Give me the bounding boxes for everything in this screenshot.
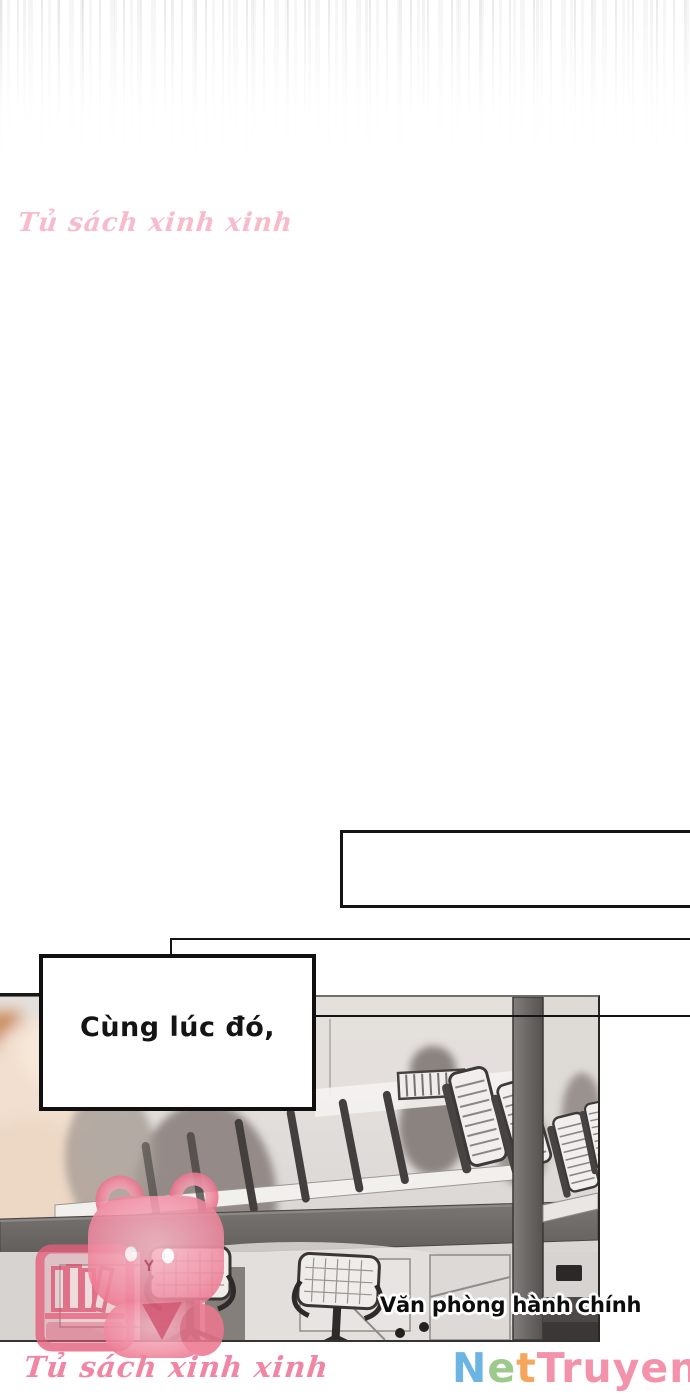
comic-page: Tủ sách xinh xinh — [0, 0, 690, 1396]
logo-letter: e — [640, 1344, 669, 1392]
top-streaks-fade — [0, 0, 690, 180]
watermark-top-text: Tủ sách xinh xinh — [16, 208, 294, 238]
logo-letter: y — [613, 1344, 641, 1392]
scene-label: Văn phòng hành chính — [380, 1293, 641, 1317]
empty-panel-top — [340, 830, 690, 908]
site-logo: NetTruyen — [452, 1348, 690, 1389]
caption-box: Cùng lúc đó, — [39, 954, 316, 1111]
panel-top-edge-segment — [0, 993, 40, 996]
caption-text: Cùng lúc đó, — [80, 1012, 275, 1053]
logo-letter: N — [452, 1344, 487, 1392]
logo-letter: t — [516, 1344, 537, 1392]
logo-letter: n — [669, 1344, 690, 1392]
logo-letter: r — [561, 1344, 582, 1392]
logo-letter: T — [537, 1344, 561, 1392]
logo-letter: e — [487, 1344, 516, 1392]
logo-letter: u — [582, 1344, 612, 1392]
bear-mascot-icon — [82, 1170, 234, 1362]
